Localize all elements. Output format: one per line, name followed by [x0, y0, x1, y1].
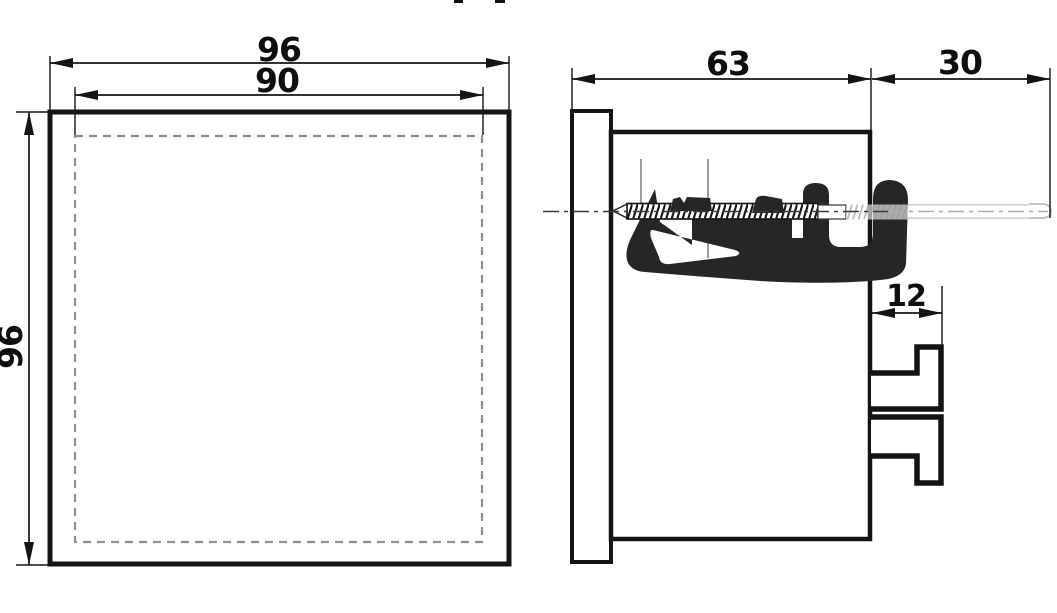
rear-terminals [871, 347, 941, 483]
dim-label-front-height: 96 [0, 325, 30, 369]
dim-label-case-depth: 63 [706, 44, 750, 83]
arrowhead-left [75, 90, 98, 100]
arrowhead-right [486, 58, 509, 68]
bezel-outline [572, 111, 611, 562]
arrowhead-right [848, 74, 871, 84]
arrowhead-right [460, 90, 483, 100]
front-view: 96 90 96 [0, 30, 509, 565]
arrowhead-left [50, 58, 73, 68]
dim-label-terminal-depth: 12 [886, 279, 926, 314]
arrowhead-left [572, 74, 595, 84]
arrowhead-right [1027, 74, 1050, 84]
technical-drawing-canvas: 96 90 96 [0, 0, 1057, 613]
side-view: 63 30 12 [543, 43, 1051, 562]
dimension-terminal-depth: 12 [872, 279, 942, 345]
dimension-case-depth: 63 [572, 44, 871, 131]
arrowhead-left [872, 74, 895, 84]
dim-label-front-cutout: 90 [255, 61, 299, 100]
dimension-drawing: 96 90 96 [0, 0, 1057, 613]
arrowhead-down [24, 542, 34, 565]
dim-label-rear-clearance: 30 [938, 43, 982, 82]
cropped-text-remnant [454, 0, 505, 3]
case-body-outline [611, 132, 870, 539]
front-panel-outline [50, 112, 509, 564]
arrowhead-up [24, 112, 34, 135]
terminal-bottom [871, 417, 941, 483]
terminal-top [871, 347, 941, 409]
dimension-front-height: 96 [0, 112, 52, 565]
